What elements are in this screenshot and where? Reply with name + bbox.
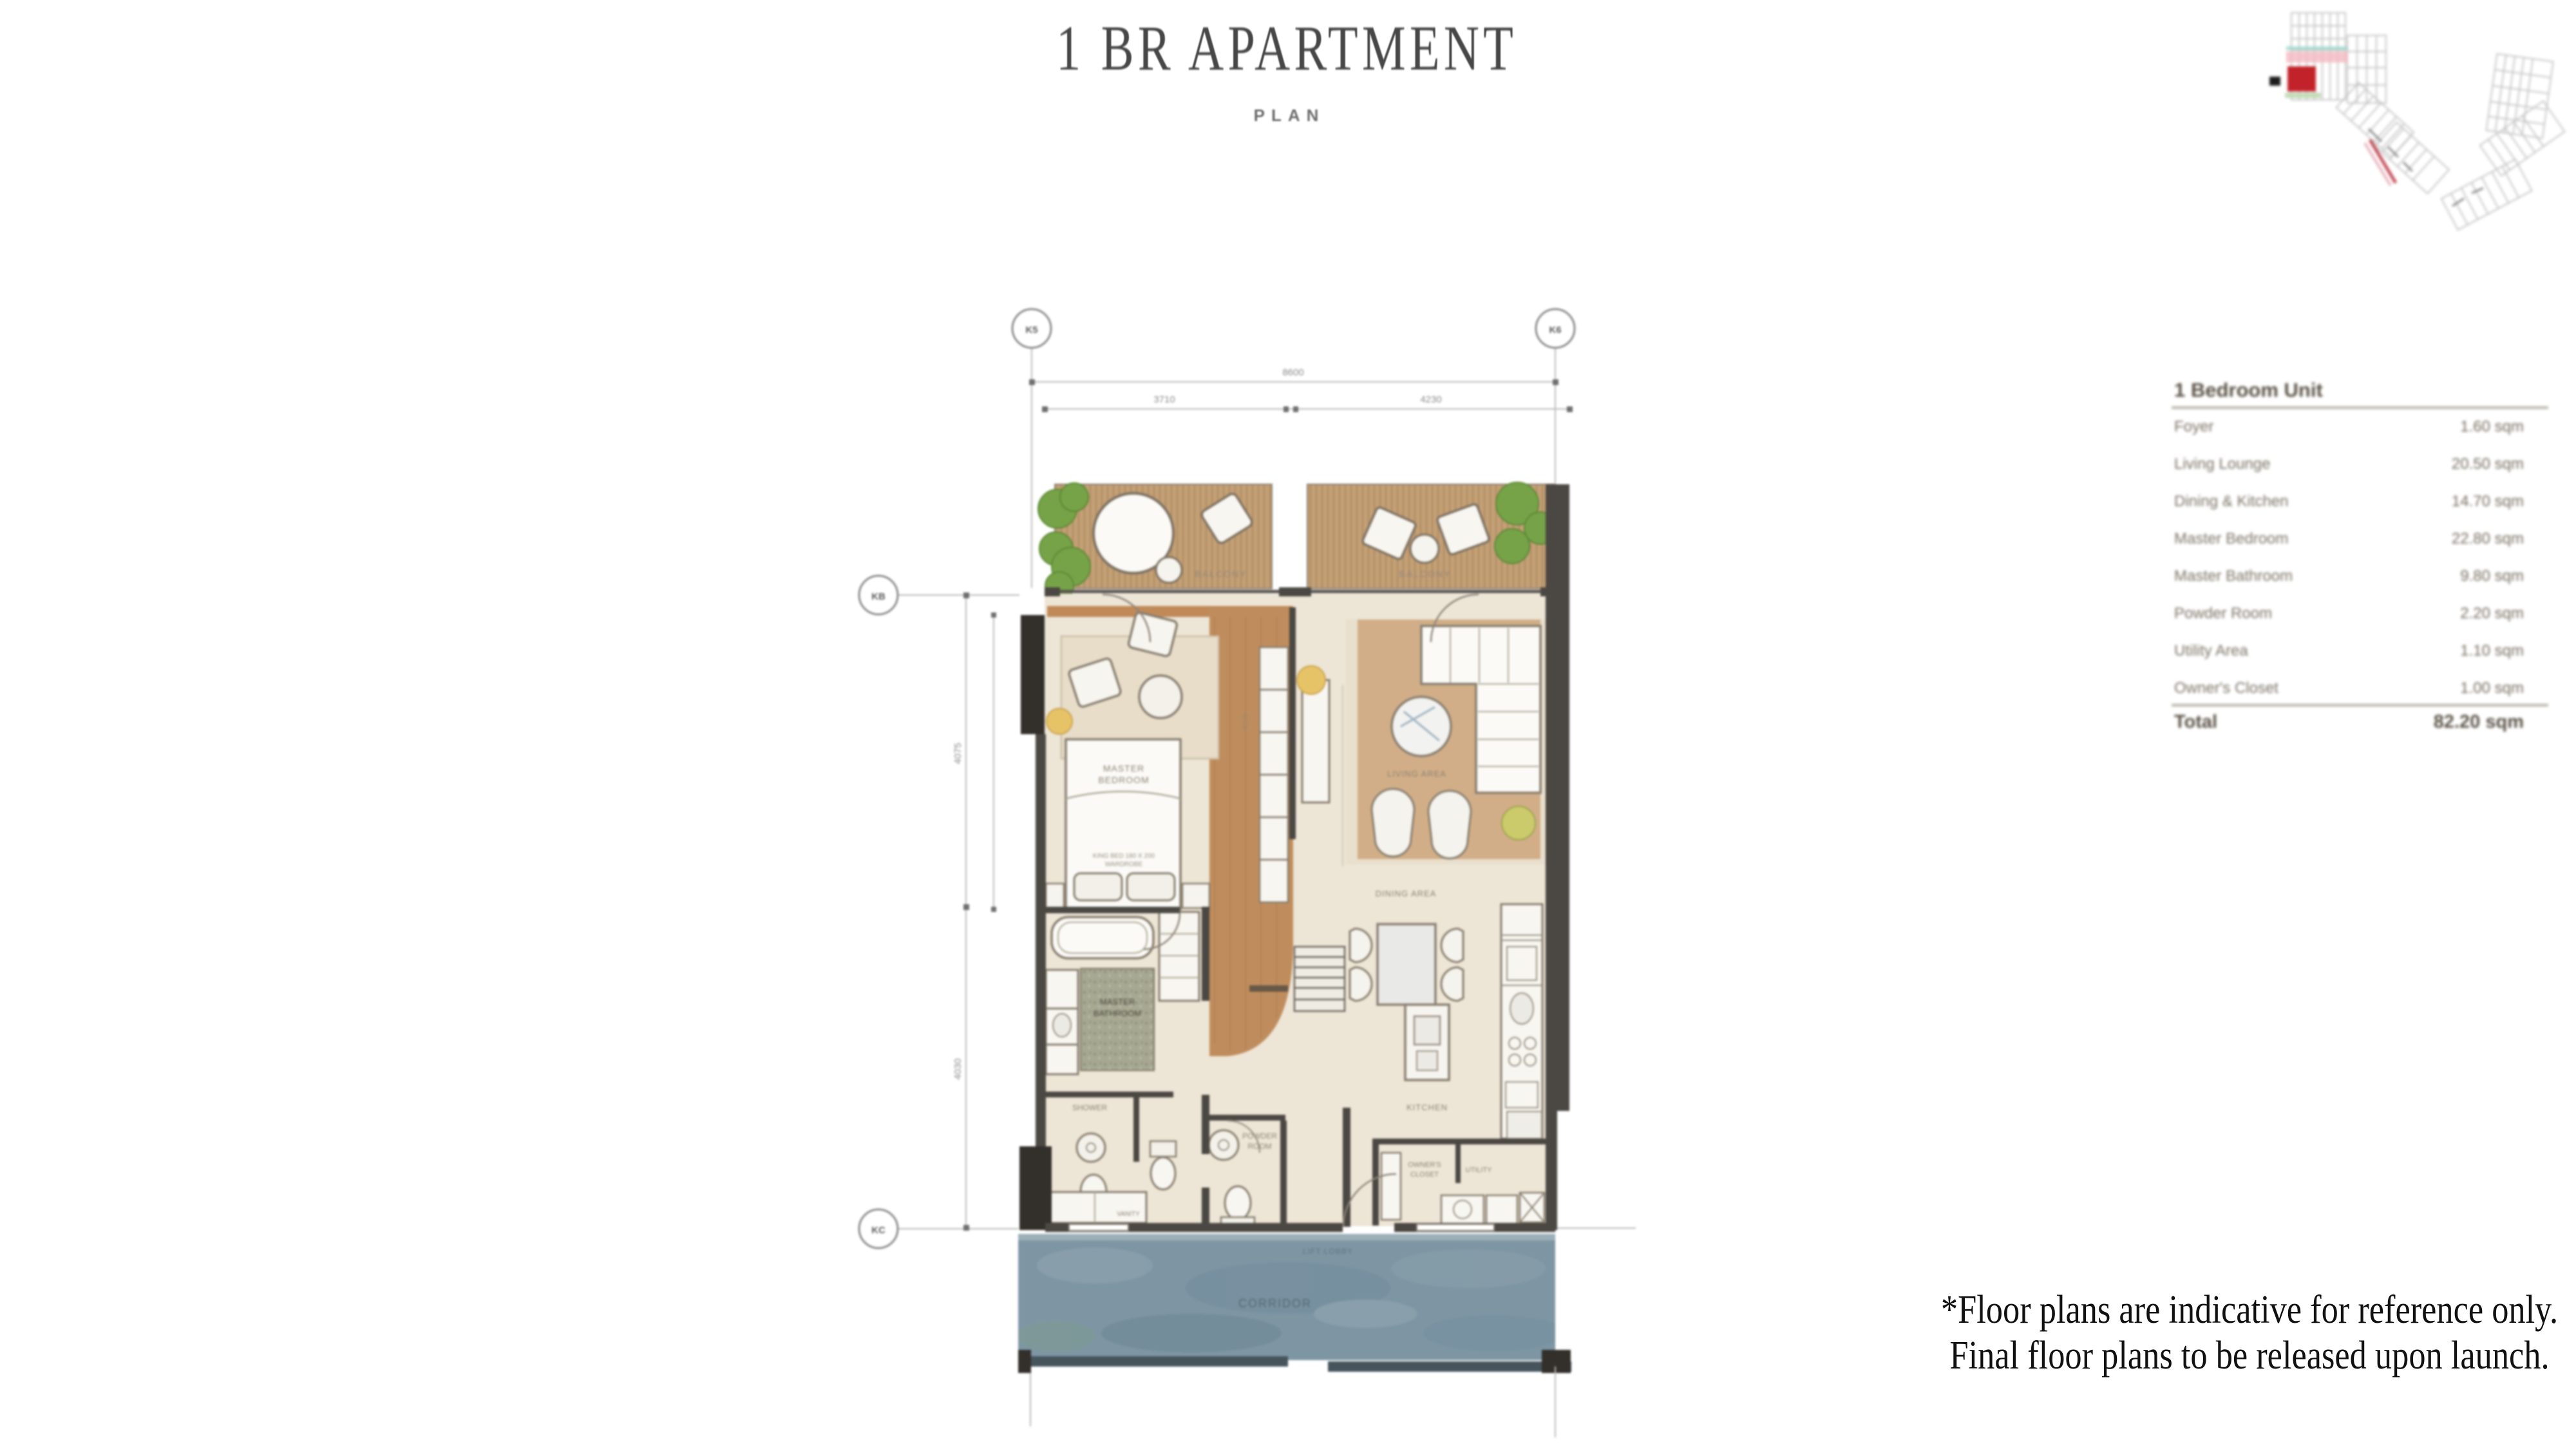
svg-text:BALCONY: BALCONY [1399, 569, 1452, 579]
svg-text:UTILITY: UTILITY [1466, 1166, 1493, 1174]
svg-text:3710: 3710 [1153, 394, 1175, 405]
svg-text:WARDROBE: WARDROBE [1105, 861, 1143, 868]
svg-text:CLOSET: CLOSET [1410, 1171, 1439, 1179]
svg-text:KB: KB [871, 591, 885, 602]
svg-text:SHOWER: SHOWER [1072, 1103, 1107, 1112]
svg-text:4230: 4230 [1420, 394, 1441, 405]
svg-text:KING BED 180 X 200: KING BED 180 X 200 [1093, 853, 1155, 860]
svg-text:4030: 4030 [952, 1058, 963, 1079]
svg-text:BEDROOM: BEDROOM [1098, 775, 1149, 785]
svg-text:MASTER: MASTER [1103, 763, 1144, 773]
svg-text:8105: 8105 [1240, 712, 1249, 730]
svg-text:BALCONY: BALCONY [1195, 569, 1247, 579]
svg-text:POWDER: POWDER [1242, 1132, 1277, 1141]
svg-text:LIVING AREA: LIVING AREA [1387, 769, 1446, 779]
svg-text:KITCHEN: KITCHEN [1406, 1103, 1448, 1112]
svg-text:OWNER'S: OWNER'S [1408, 1161, 1441, 1169]
svg-text:LIFT LOBBY: LIFT LOBBY [1303, 1247, 1353, 1256]
svg-text:KC: KC [871, 1225, 885, 1236]
svg-text:CORRIDOR: CORRIDOR [1238, 1297, 1312, 1310]
svg-text:4075: 4075 [952, 743, 963, 764]
svg-text:K6: K6 [1549, 325, 1561, 336]
svg-text:VANITY: VANITY [1117, 1211, 1140, 1218]
svg-text:BATHROOM: BATHROOM [1094, 1009, 1141, 1018]
svg-text:K5: K5 [1025, 325, 1037, 336]
svg-text:MASTER: MASTER [1100, 997, 1135, 1007]
svg-text:8600: 8600 [1282, 367, 1303, 378]
svg-text:DINING AREA: DINING AREA [1376, 889, 1437, 898]
